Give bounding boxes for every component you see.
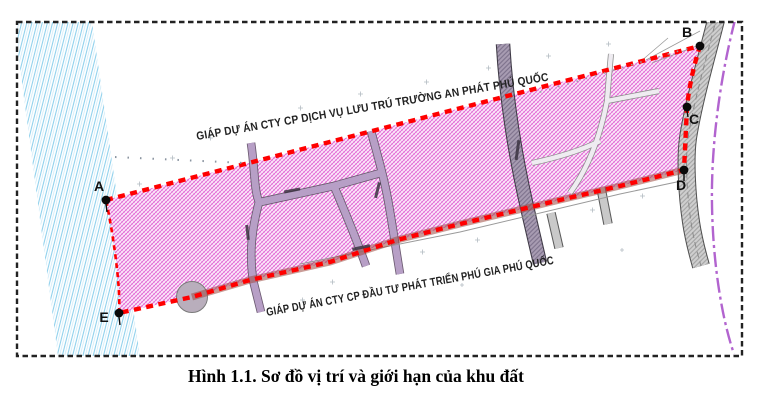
site-map-figure: A B C D E GIÁP DỰ ÁN CTY CP DỊCH VỤ LƯU … <box>0 0 767 402</box>
vertex-label-D: D <box>676 177 686 193</box>
figure-area: A B C D E GIÁP DỰ ÁN CTY CP DỊCH VỤ LƯU … <box>0 0 767 402</box>
figure-caption: Hình 1.1. Sơ đồ vị trí và giới hạn của k… <box>0 366 712 387</box>
vertex-label-B: B <box>682 24 692 40</box>
road-stub <box>551 213 559 248</box>
vertex-label-C: C <box>689 111 699 127</box>
vertex-dot-B <box>696 42 705 51</box>
vertex-dot-D <box>680 166 689 175</box>
vertex-label-E: E <box>99 309 108 325</box>
tick-row-left <box>115 157 245 163</box>
admin-boundary-line <box>712 20 735 354</box>
vertex-dot-E <box>115 309 124 318</box>
vertex-dot-A <box>102 196 111 205</box>
vertex-label-A: A <box>94 178 104 194</box>
